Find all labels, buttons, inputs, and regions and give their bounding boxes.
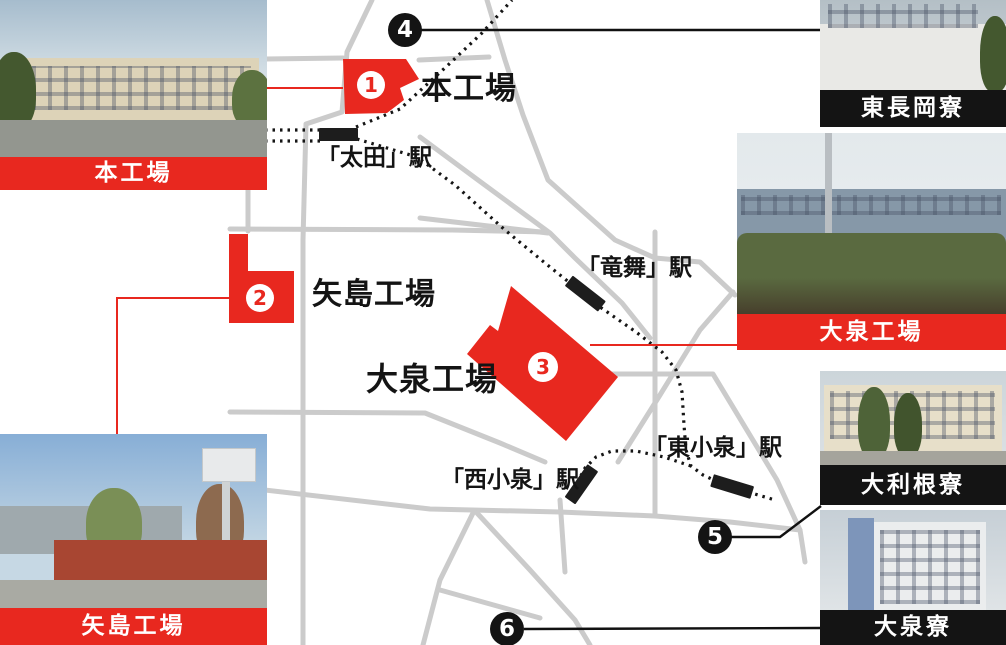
photo-caption: 大利根寮 [820, 465, 1006, 505]
photo-otone: 大利根寮 [820, 371, 1006, 505]
marker-number: 4 [397, 19, 413, 42]
ground-shape [820, 451, 1006, 465]
map-label-nishikoizumi-station: 「西小泉」駅 [441, 469, 579, 492]
map-label-honkojo: 本工場 [421, 74, 517, 105]
road [440, 590, 540, 618]
marker-2-yajima: 2 [246, 284, 274, 312]
photo-yajima: 矢島工場 [0, 434, 267, 645]
connector-marker6-photo [524, 628, 820, 629]
railway-network [265, 0, 775, 500]
tree-shape [858, 387, 890, 459]
marker-number: 1 [364, 75, 378, 95]
tree-shape [0, 52, 36, 130]
marker-3-oizumi: 3 [528, 352, 558, 382]
marker-5-otone: 5 [698, 520, 732, 554]
road [487, 0, 735, 295]
tree-shape [980, 16, 1006, 92]
pole-shape [825, 133, 832, 243]
building-windows [880, 530, 980, 604]
marker-number: 2 [253, 288, 267, 308]
map-label-oizumi: 大泉工場 [366, 363, 498, 395]
building-windows [16, 66, 251, 110]
hedge-shape [737, 233, 1006, 314]
red-wall-shape [54, 540, 267, 582]
building-windows [828, 4, 978, 28]
map-label-ota-station: 「太田」駅 [317, 147, 432, 170]
photo-oizumi-plant: 大泉工場 [737, 133, 1006, 350]
road [423, 513, 473, 645]
marker-6-oizumidorm: 6 [490, 612, 524, 645]
marker-4-higashinagaoka: 4 [388, 13, 422, 47]
building-shape [848, 518, 874, 610]
marker-1-honkojo: 1 [357, 71, 385, 99]
map-label-yajima: 矢島工場 [312, 280, 436, 310]
photo-oizumi-dorm: 大泉寮 [820, 510, 1006, 645]
ground-shape [0, 580, 267, 608]
photo-caption: 大泉工場 [737, 314, 1006, 350]
marker-number: 6 [499, 618, 515, 641]
road [230, 412, 545, 462]
plant-location-map: 1 2 3 4 5 6 本工場 矢島工場 大泉工場 「太田」駅 「竜舞」駅 「西… [0, 0, 1006, 645]
photo-caption: 東長岡寮 [820, 90, 1006, 127]
map-label-higashikoizumi-station: 「東小泉」駅 [644, 437, 782, 460]
tree-shape [894, 393, 922, 457]
marker-number: 3 [536, 357, 550, 377]
photo-caption: 本工場 [0, 157, 267, 190]
building-windows [741, 195, 1001, 215]
photo-caption: 矢島工場 [0, 608, 267, 645]
sign-shape [202, 448, 256, 482]
station-marker-ota [319, 128, 358, 141]
ground-shape [0, 120, 267, 158]
station-marker-higashikoizumi [710, 474, 754, 499]
map-label-ryumai-station: 「竜舞」駅 [577, 257, 692, 280]
connector-yajima-photo [117, 298, 232, 434]
road [265, 58, 343, 59]
photo-caption: 大泉寮 [820, 610, 1006, 645]
building-shape [820, 24, 1006, 90]
photo-honkojo: 本工場 [0, 0, 267, 190]
marker-number: 5 [707, 526, 723, 549]
photo-higashinagaoka: 東長岡寮 [820, 0, 1006, 127]
